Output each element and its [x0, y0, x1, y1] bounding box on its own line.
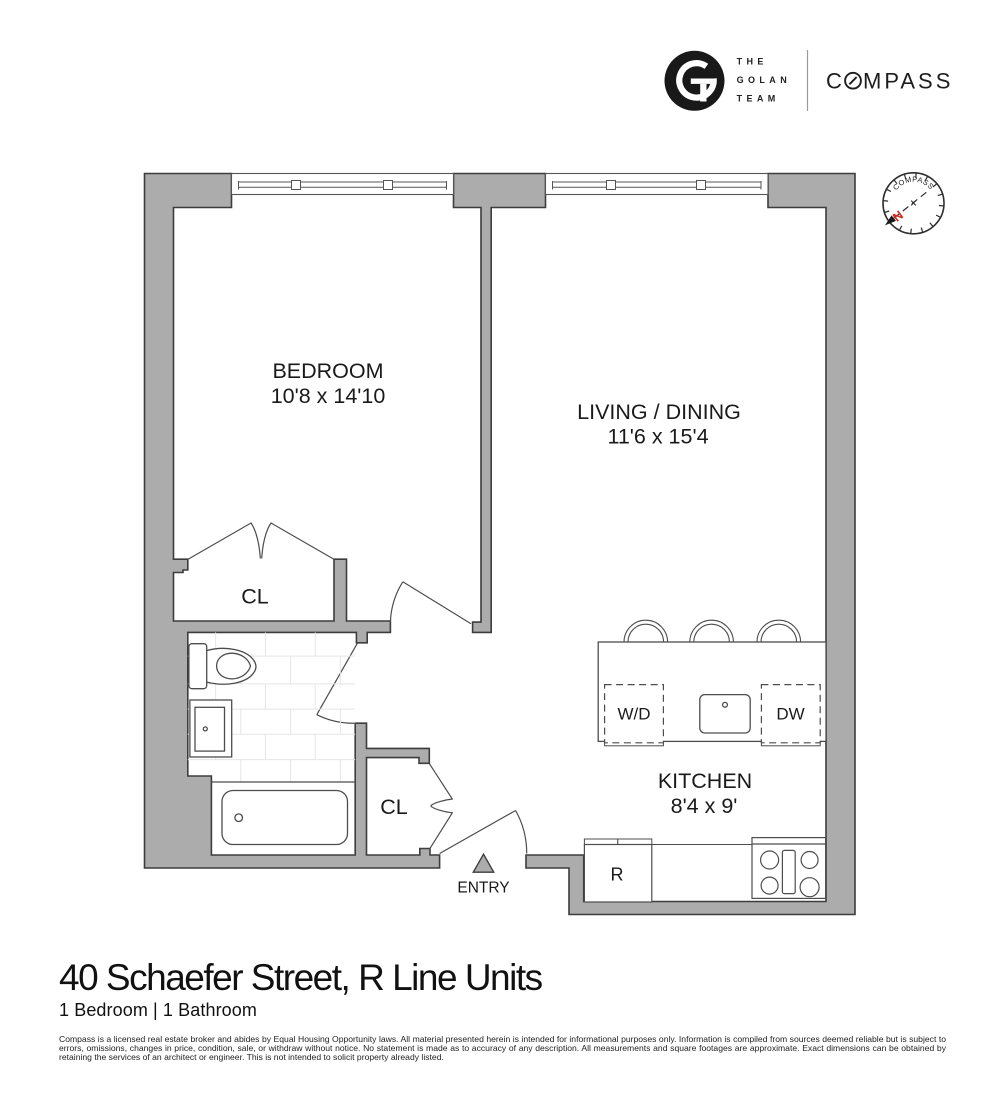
svg-text:KITCHEN: KITCHEN — [658, 769, 752, 793]
svg-text:GOLAN: GOLAN — [737, 75, 792, 85]
svg-text:MPASS: MPASS — [863, 69, 953, 94]
svg-text:DW: DW — [776, 705, 804, 724]
svg-text:10'8 x 14'10: 10'8 x 14'10 — [271, 384, 386, 408]
svg-text:C: C — [826, 69, 845, 94]
svg-text:LIVING / DINING: LIVING / DINING — [577, 400, 741, 424]
svg-text:THE: THE — [737, 57, 768, 67]
svg-text:CL: CL — [241, 585, 269, 609]
svg-text:11'6 x 15'4: 11'6 x 15'4 — [607, 425, 708, 449]
svg-text:TEAM: TEAM — [737, 94, 780, 104]
svg-text:CL: CL — [380, 795, 408, 819]
svg-text:ENTRY: ENTRY — [457, 879, 509, 896]
svg-text:8'4 x 9': 8'4 x 9' — [671, 794, 738, 818]
svg-text:BEDROOM: BEDROOM — [272, 359, 383, 383]
svg-text:R: R — [611, 865, 624, 885]
svg-text:W/D: W/D — [617, 705, 650, 724]
